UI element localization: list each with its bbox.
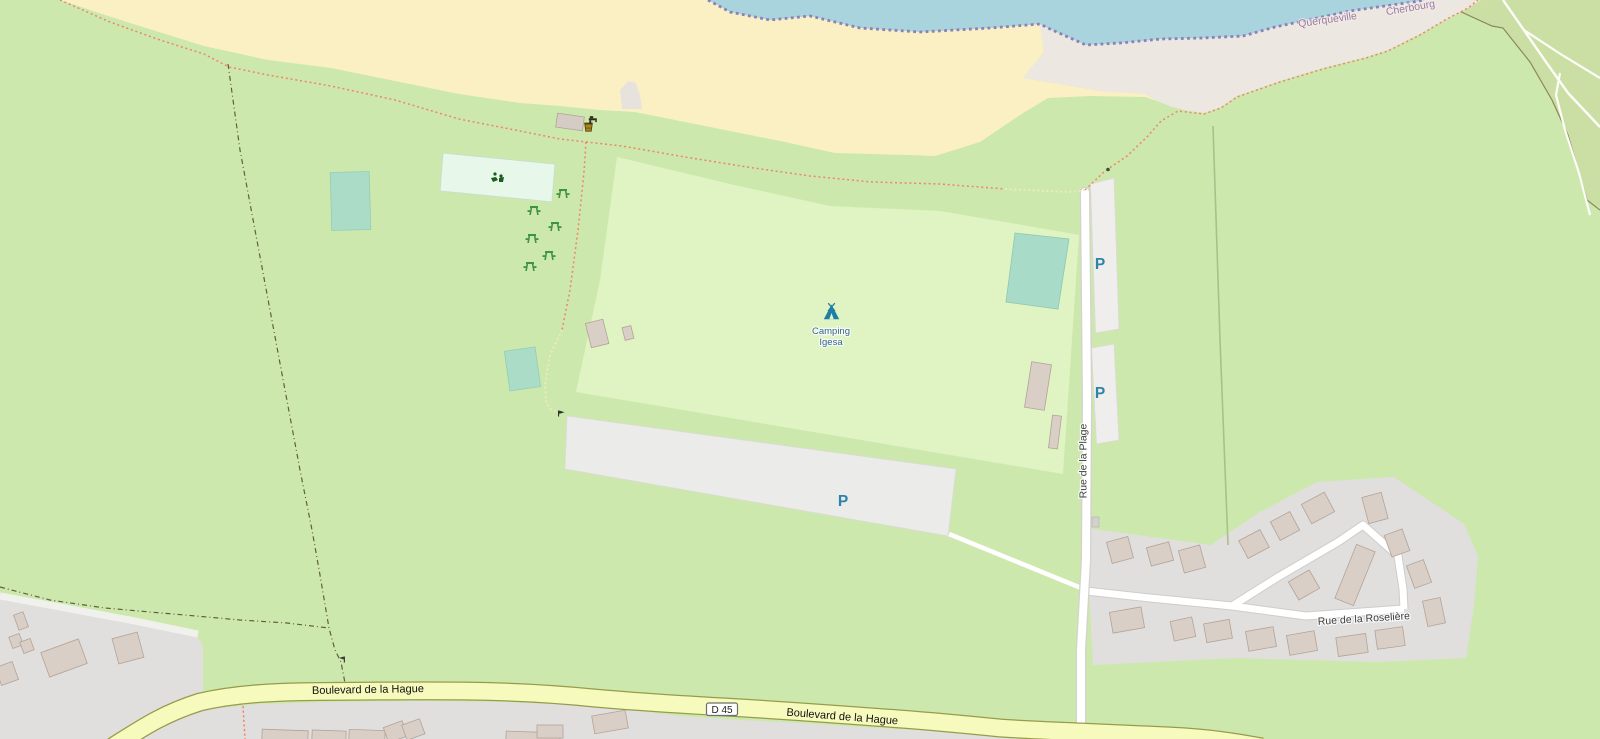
svg-text:Boulevard de la Hague: Boulevard de la Hague: [312, 683, 424, 697]
svg-text:Rue de la Plage: Rue de la Plage: [1078, 423, 1090, 498]
svg-text:P: P: [1095, 385, 1105, 402]
svg-text:Igesa: Igesa: [819, 337, 843, 348]
svg-text:D 45: D 45: [711, 705, 733, 716]
svg-text:P: P: [1095, 256, 1105, 273]
svg-text:P: P: [838, 493, 848, 510]
svg-text:Camping: Camping: [812, 326, 850, 337]
